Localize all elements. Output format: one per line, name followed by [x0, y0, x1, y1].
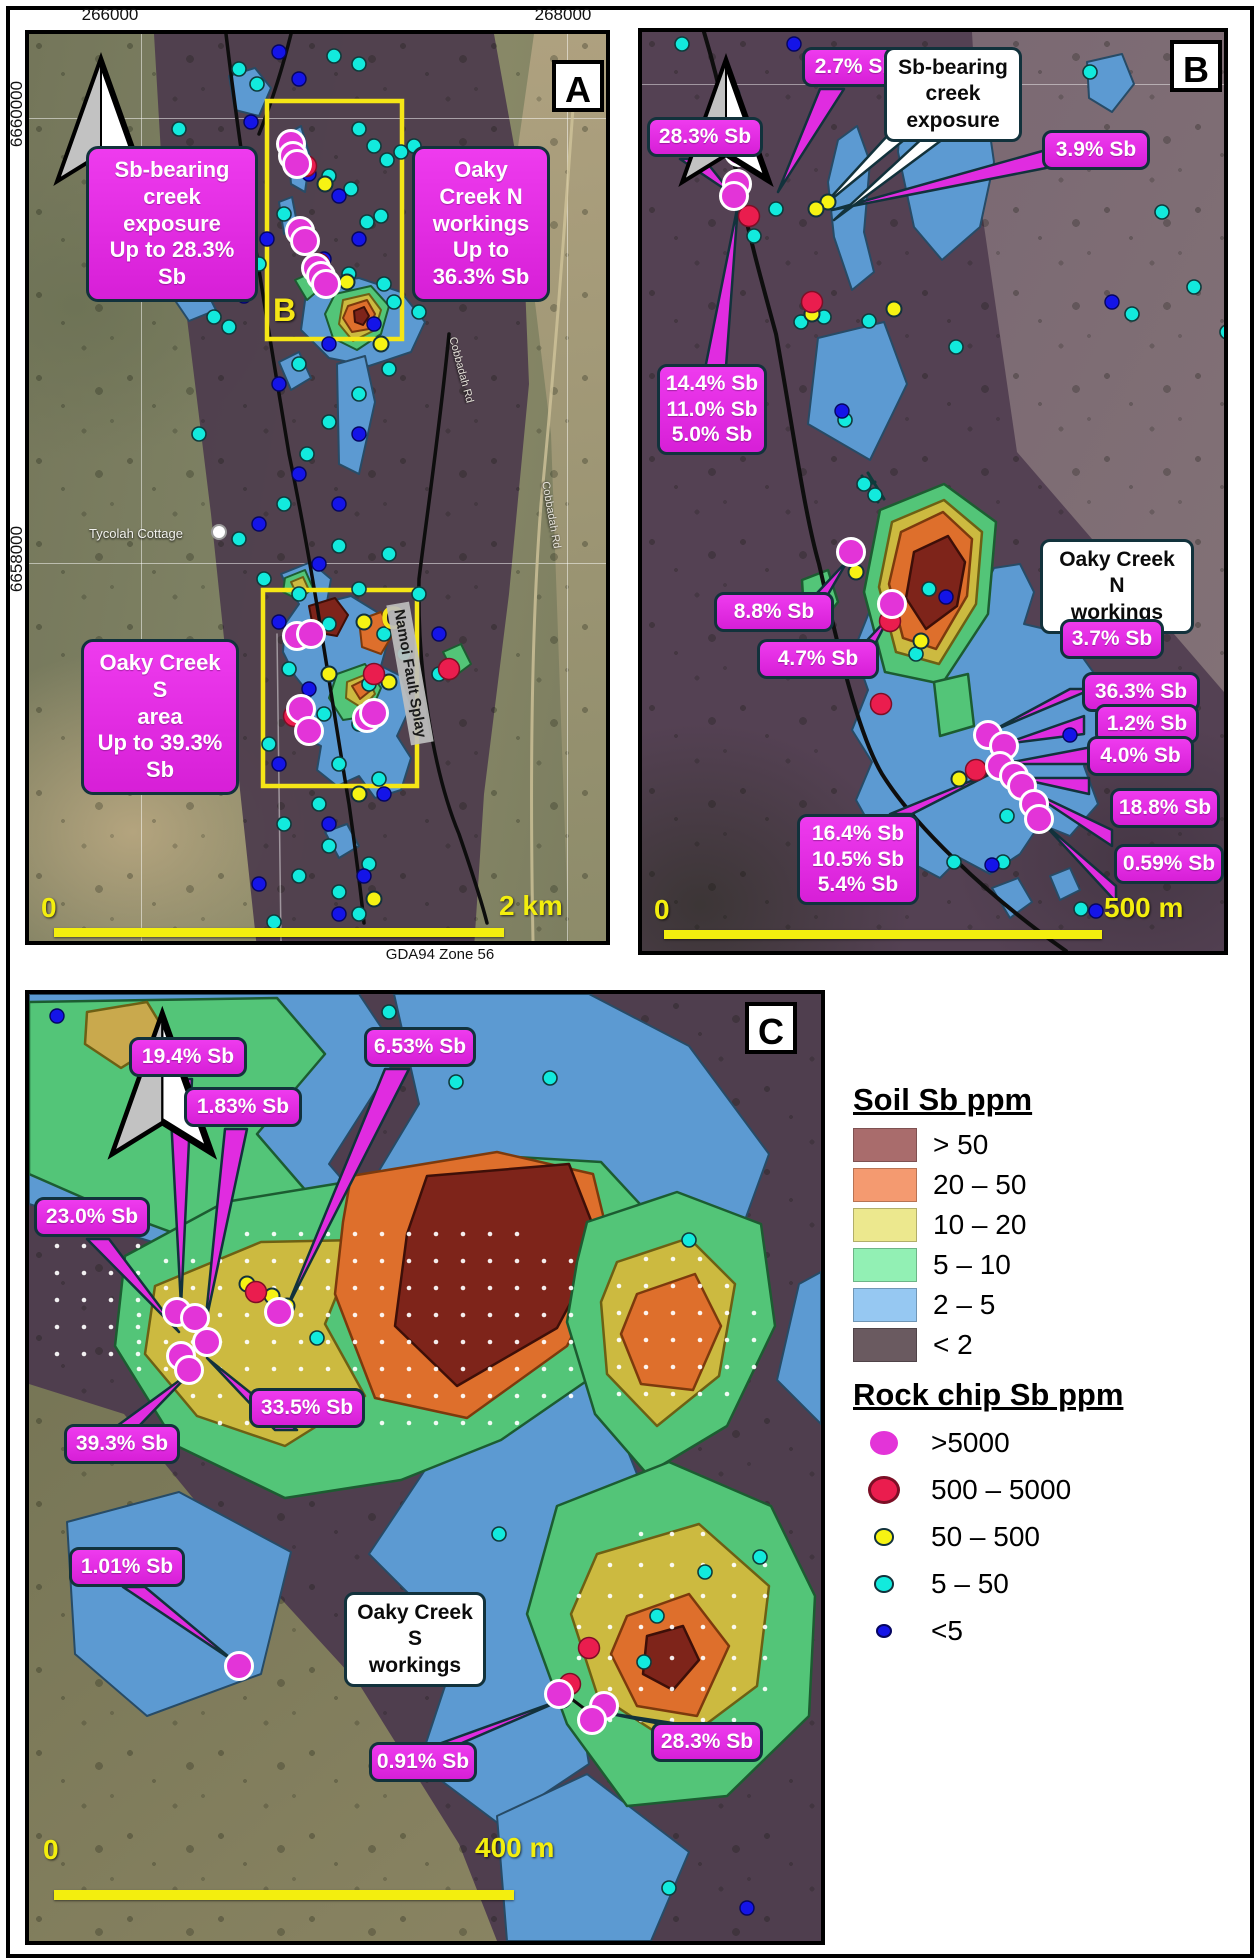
legend-soil-row: 10 – 20: [853, 1208, 1250, 1241]
label-1-01-sb: 1.01% Sb: [69, 1547, 185, 1587]
label-1-83-sb: 1.83% Sb: [184, 1087, 302, 1127]
map-pin-icon: [211, 524, 227, 540]
label-0-59-sb: 0.59% Sb: [1114, 844, 1224, 884]
datum-label: GDA94 Zone 56: [380, 946, 500, 963]
rock-chip-dot-icon: [876, 1624, 892, 1638]
panel-tag-b: B: [1170, 40, 1222, 92]
callout-oaky-creek-n: Oaky Creek N workings Up to 36.3% Sb: [412, 146, 550, 302]
label-0-91-sb: 0.91% Sb: [369, 1742, 477, 1782]
soil-range-label: 10 – 20: [933, 1209, 1026, 1241]
panel-tag-a: A: [552, 60, 604, 112]
soil-swatch: [853, 1208, 917, 1242]
legend-soil-row: 2 – 5: [853, 1288, 1250, 1321]
label-19-4-sb: 19.4% Sb: [129, 1037, 247, 1077]
panel-tag-c: C: [745, 1002, 797, 1054]
label-28-3-sb-c: 28.3% Sb: [651, 1722, 763, 1762]
soil-range-label: 5 – 10: [933, 1249, 1011, 1281]
soil-range-label: 2 – 5: [933, 1289, 995, 1321]
rock-chip-dot-icon: [868, 1476, 900, 1504]
soil-swatch: [853, 1328, 917, 1362]
legend-rock-row: <5: [853, 1611, 1250, 1651]
map-canvas-c: [29, 994, 821, 1941]
rock-range-label: <5: [931, 1615, 963, 1647]
legend-rock-items: >5000 500 – 5000 50 – 500 5 – 50 <5: [845, 1423, 1250, 1651]
scalebar-b: [664, 930, 1102, 939]
label-8-8-sb: 8.8% Sb: [714, 592, 834, 632]
label-16-4-sb: 16.4% Sb 10.5% Sb 5.4% Sb: [797, 814, 919, 905]
rock-dot-col: [853, 1624, 915, 1638]
easting-label-268000: 268000: [527, 5, 599, 25]
scalebar-zero-b: 0: [654, 894, 670, 926]
label-39-3-sb: 39.3% Sb: [64, 1424, 180, 1464]
scalebar-c: [54, 1890, 514, 1900]
label-18-8-sb: 18.8% Sb: [1110, 788, 1220, 828]
rock-dot-col: [853, 1476, 915, 1504]
legend-soil-row: 5 – 10: [853, 1248, 1250, 1281]
figure-page: 266000 268000 6660000 6658000 GDA94 Zone…: [0, 0, 1256, 1960]
map-panel-a: Sb-bearing creek exposure Up to 28.3% Sb…: [25, 30, 610, 945]
map-panel-b: B 2.7% Sb 28.3% Sb 3.9% Sb Sb-bearing cr…: [638, 28, 1228, 955]
legend-soil-row: > 50: [853, 1128, 1250, 1161]
northing-label-6660000: 6660000: [7, 74, 27, 154]
map-panel-c: C 19.4% Sb 1.83% Sb 6.53% Sb 23.0% Sb 33…: [25, 990, 825, 1945]
rock-range-label: >5000: [931, 1427, 1010, 1459]
soil-range-label: > 50: [933, 1129, 988, 1161]
inset-letter-b: B: [273, 292, 296, 329]
scalebar-end-c: 400 m: [475, 1832, 554, 1864]
legend-rock-title: Rock chip Sb ppm: [853, 1377, 1250, 1413]
legend-rock-row: 5 – 50: [853, 1564, 1250, 1604]
label-6-53-sb: 6.53% Sb: [364, 1027, 476, 1067]
scalebar-zero-c: 0: [43, 1834, 59, 1866]
callout-creek-exposure: Sb-bearing creek exposure Up to 28.3% Sb: [86, 146, 258, 302]
label-4-0-sb: 4.0% Sb: [1087, 736, 1194, 776]
rock-dot-col: [853, 1575, 915, 1593]
legend-rock-row: 500 – 5000: [853, 1470, 1250, 1510]
legend-rock-row: 50 – 500: [853, 1517, 1250, 1557]
soil-swatch: [853, 1288, 917, 1322]
rock-chip-dot-icon: [874, 1528, 894, 1546]
place-tycolah-cottage: Tycolah Cottage: [89, 526, 183, 541]
callout-oaky-creek-s: Oaky Creek S area Up to 39.3% Sb: [81, 639, 239, 795]
rock-dot-col: [853, 1528, 915, 1546]
label-3-9-sb: 3.9% Sb: [1042, 130, 1150, 170]
legend-soil-items: > 50 20 – 50 10 – 20 5 – 10 2 – 5 < 2: [845, 1128, 1250, 1361]
label-23-0-sb: 23.0% Sb: [34, 1197, 150, 1237]
soil-range-label: < 2: [933, 1329, 973, 1361]
northing-label-6658000: 6658000: [7, 519, 27, 599]
label-3-7-sb: 3.7% Sb: [1060, 619, 1164, 659]
scalebar-end-b: 500 m: [1104, 892, 1183, 924]
label-14-4-sb: 14.4% Sb 11.0% Sb 5.0% Sb: [657, 364, 767, 455]
rock-range-label: 500 – 5000: [931, 1474, 1071, 1506]
legend-soil-row: 20 – 50: [853, 1168, 1250, 1201]
label-oaky-creek-s-workings: Oaky Creek S workings: [344, 1592, 486, 1687]
rock-chip-dot-icon: [867, 1428, 901, 1458]
soil-range-label: 20 – 50: [933, 1169, 1026, 1201]
scalebar-end-a: 2 km: [499, 890, 563, 922]
soil-swatch: [853, 1128, 917, 1162]
legend-rock-row: >5000: [853, 1423, 1250, 1463]
label-33-5-sb: 33.5% Sb: [249, 1388, 365, 1428]
label-4-7-sb: 4.7% Sb: [757, 639, 879, 679]
scalebar-zero-a: 0: [41, 892, 57, 924]
soil-swatch: [853, 1248, 917, 1282]
rock-range-label: 5 – 50: [931, 1568, 1009, 1600]
scalebar-a: [54, 928, 504, 937]
legend-soil-row: < 2: [853, 1328, 1250, 1361]
label-creek-exposure-b: Sb-bearing creek exposure: [884, 47, 1022, 142]
map-legend: Soil Sb ppm > 50 20 – 50 10 – 20 5 – 10 …: [845, 1082, 1250, 1658]
rock-chip-dot-icon: [874, 1575, 894, 1593]
easting-label-266000: 266000: [74, 5, 146, 25]
rock-range-label: 50 – 500: [931, 1521, 1040, 1553]
soil-swatch: [853, 1168, 917, 1202]
label-28-3-sb: 28.3% Sb: [647, 117, 763, 157]
legend-soil-title: Soil Sb ppm: [853, 1082, 1250, 1118]
rock-dot-col: [853, 1428, 915, 1458]
